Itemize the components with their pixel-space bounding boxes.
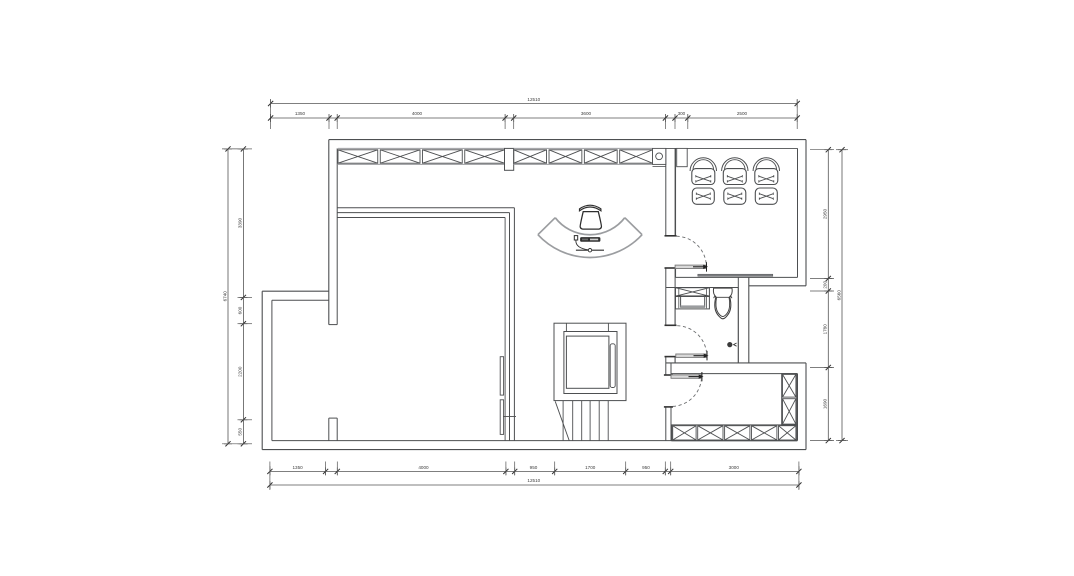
svg-text:1700: 1700 xyxy=(585,465,596,470)
svg-text:600: 600 xyxy=(238,306,243,314)
svg-text:1690: 1690 xyxy=(823,398,828,409)
svg-text:12510: 12510 xyxy=(527,97,540,102)
svg-text:550: 550 xyxy=(238,428,243,436)
svg-text:300: 300 xyxy=(678,111,686,116)
svg-text:2200: 2200 xyxy=(238,366,243,377)
svg-text:1350: 1350 xyxy=(292,465,303,470)
svg-text:4000: 4000 xyxy=(412,111,423,116)
svg-text:6560: 6560 xyxy=(836,290,841,301)
svg-text:2950: 2950 xyxy=(823,208,828,219)
svg-text:12510: 12510 xyxy=(527,478,540,483)
svg-text:6740: 6740 xyxy=(222,291,227,302)
svg-text:2500: 2500 xyxy=(737,111,748,116)
svg-text:4000: 4000 xyxy=(418,465,429,470)
svg-text:200: 200 xyxy=(823,281,828,289)
svg-text:3600: 3600 xyxy=(581,111,592,116)
svg-text:950: 950 xyxy=(642,465,650,470)
svg-text:1350: 1350 xyxy=(295,111,306,116)
svg-text:3390: 3390 xyxy=(238,217,243,228)
svg-text:3000: 3000 xyxy=(729,465,740,470)
svg-text:1780: 1780 xyxy=(823,324,828,335)
svg-text:950: 950 xyxy=(530,465,538,470)
